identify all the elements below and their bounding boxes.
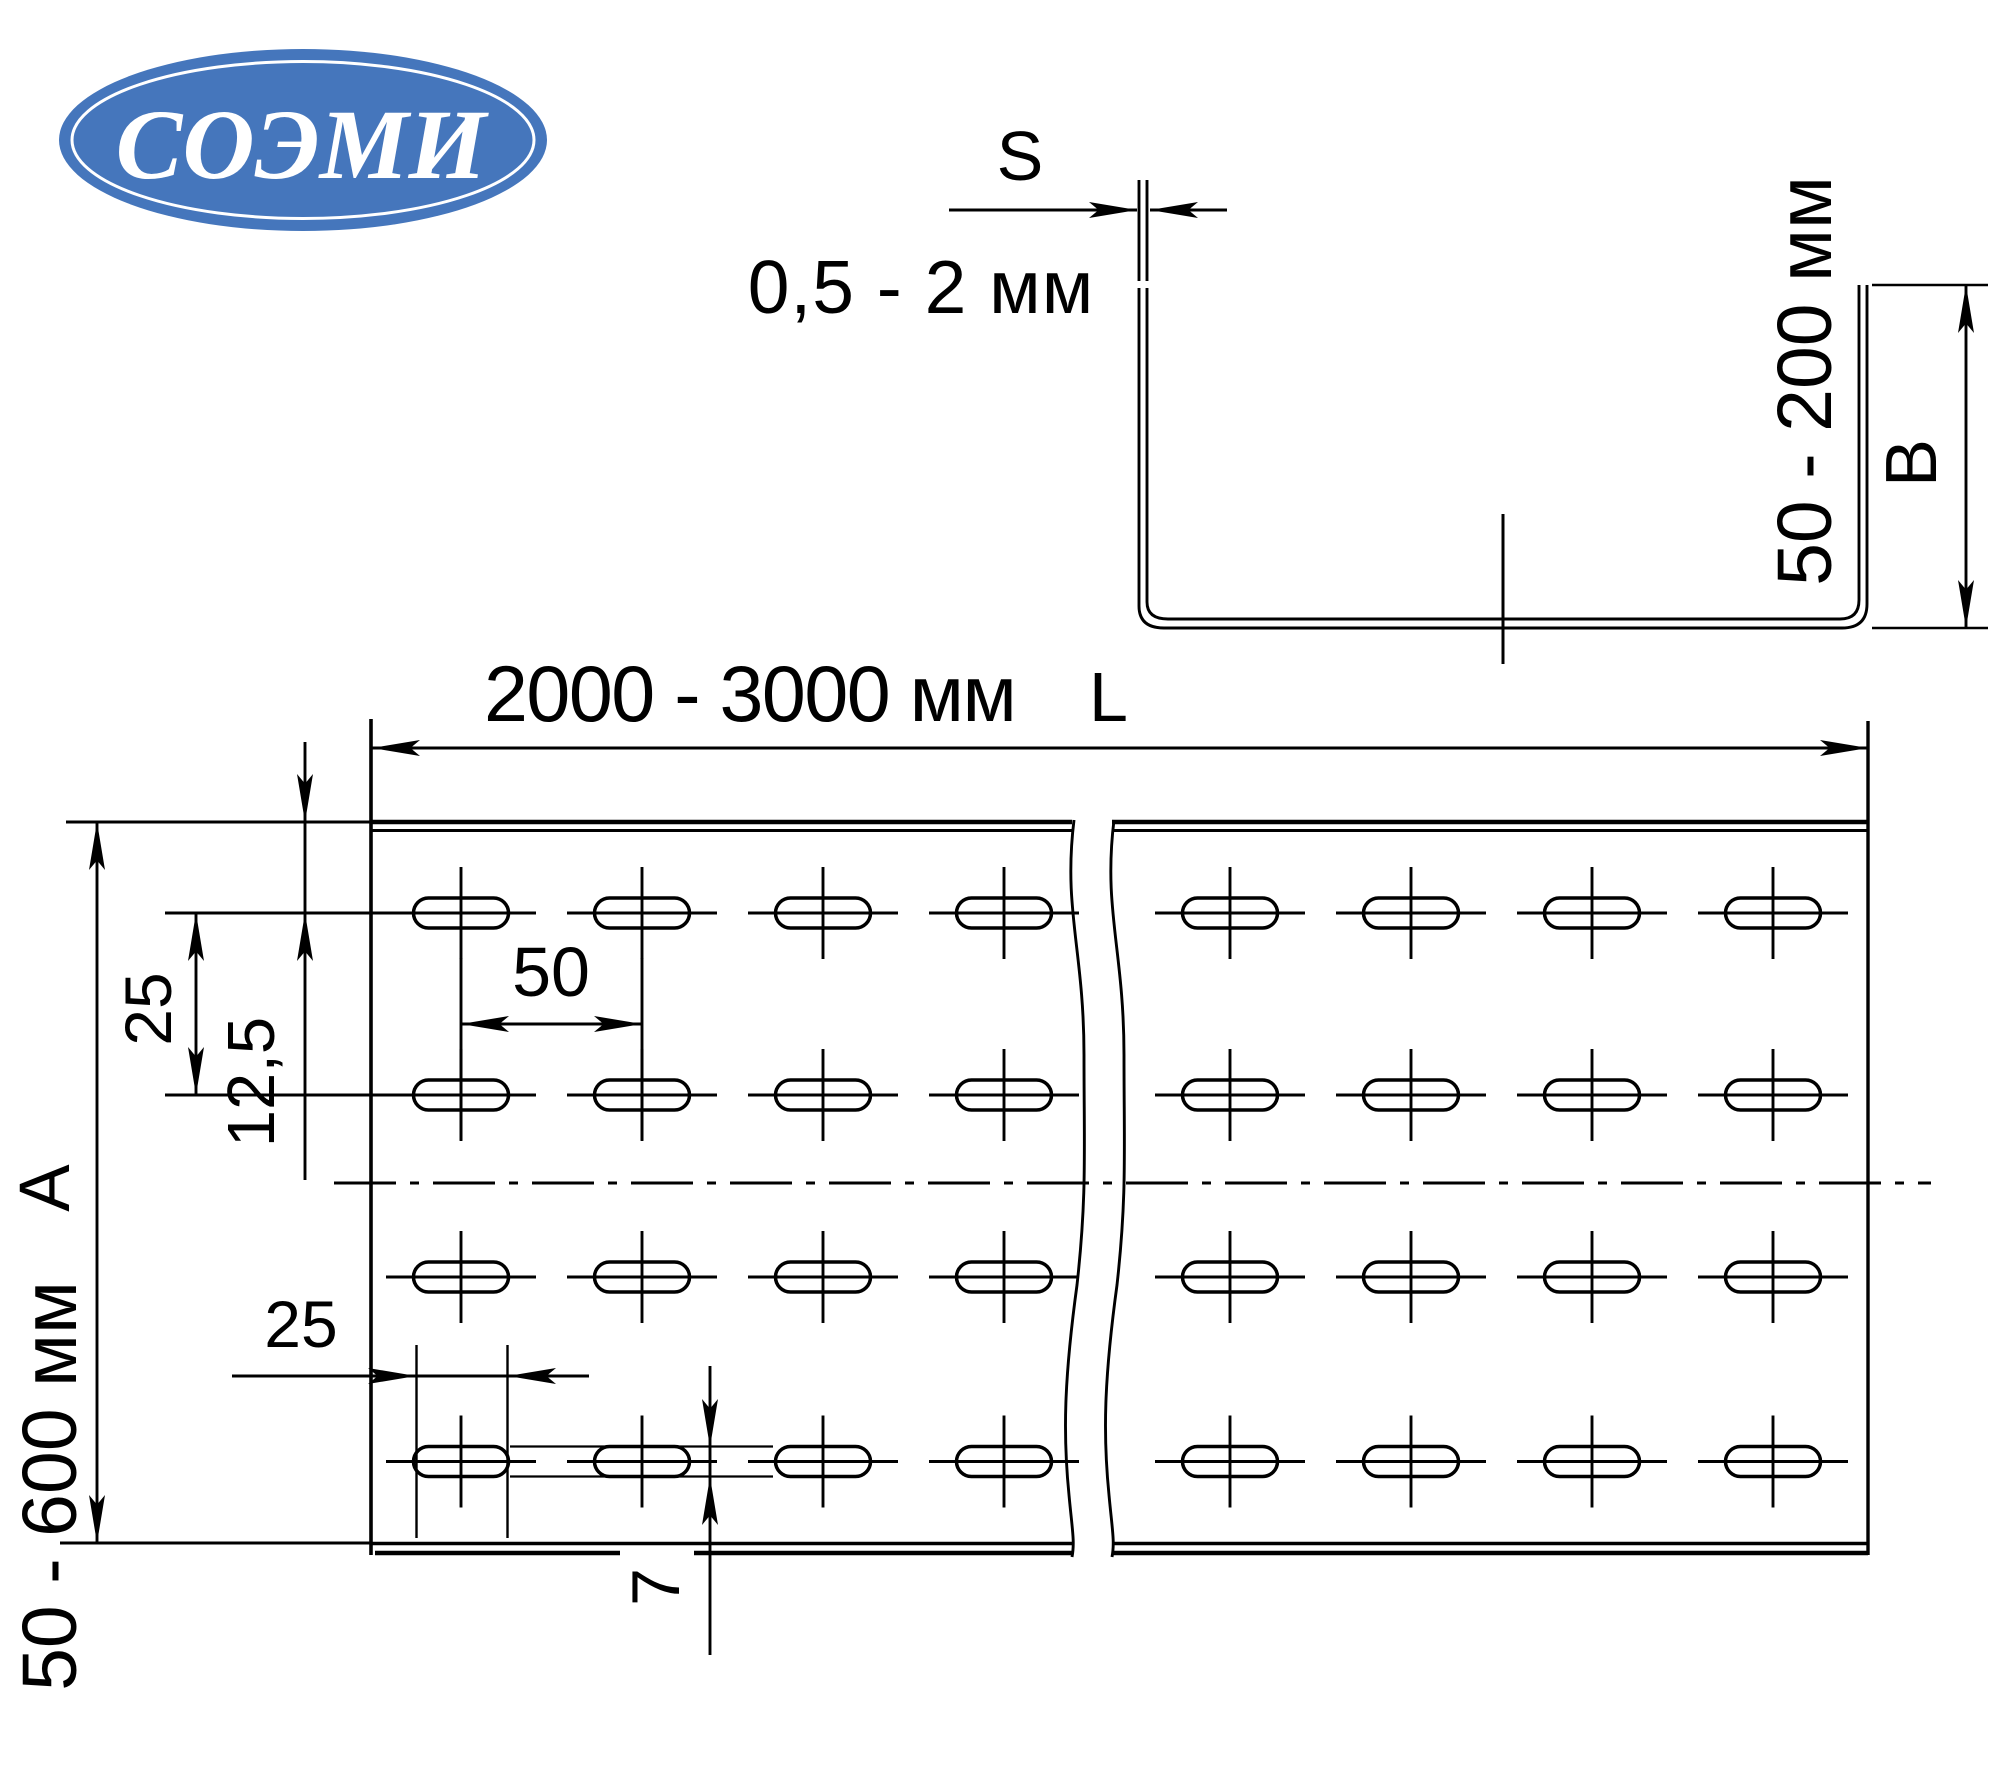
svg-text:S: S: [997, 117, 1044, 195]
svg-text:25: 25: [111, 972, 185, 1045]
svg-text:В: В: [1872, 439, 1952, 487]
svg-text:А: А: [6, 1164, 85, 1212]
svg-text:2000 - 3000 мм: 2000 - 3000 мм: [484, 649, 1015, 738]
svg-text:50 - 600 мм: 50 - 600 мм: [7, 1281, 93, 1691]
svg-text:25: 25: [264, 1287, 337, 1361]
svg-text:L: L: [1089, 658, 1128, 736]
svg-text:50 - 200 мм: 50 - 200 мм: [1762, 176, 1848, 586]
svg-text:50: 50: [512, 933, 590, 1011]
svg-text:7: 7: [618, 1568, 694, 1606]
svg-text:0,5 - 2 мм: 0,5 - 2 мм: [748, 245, 1095, 329]
svg-text:СОЭМИ: СОЭМИ: [116, 89, 490, 200]
svg-text:12,5: 12,5: [214, 1017, 289, 1147]
